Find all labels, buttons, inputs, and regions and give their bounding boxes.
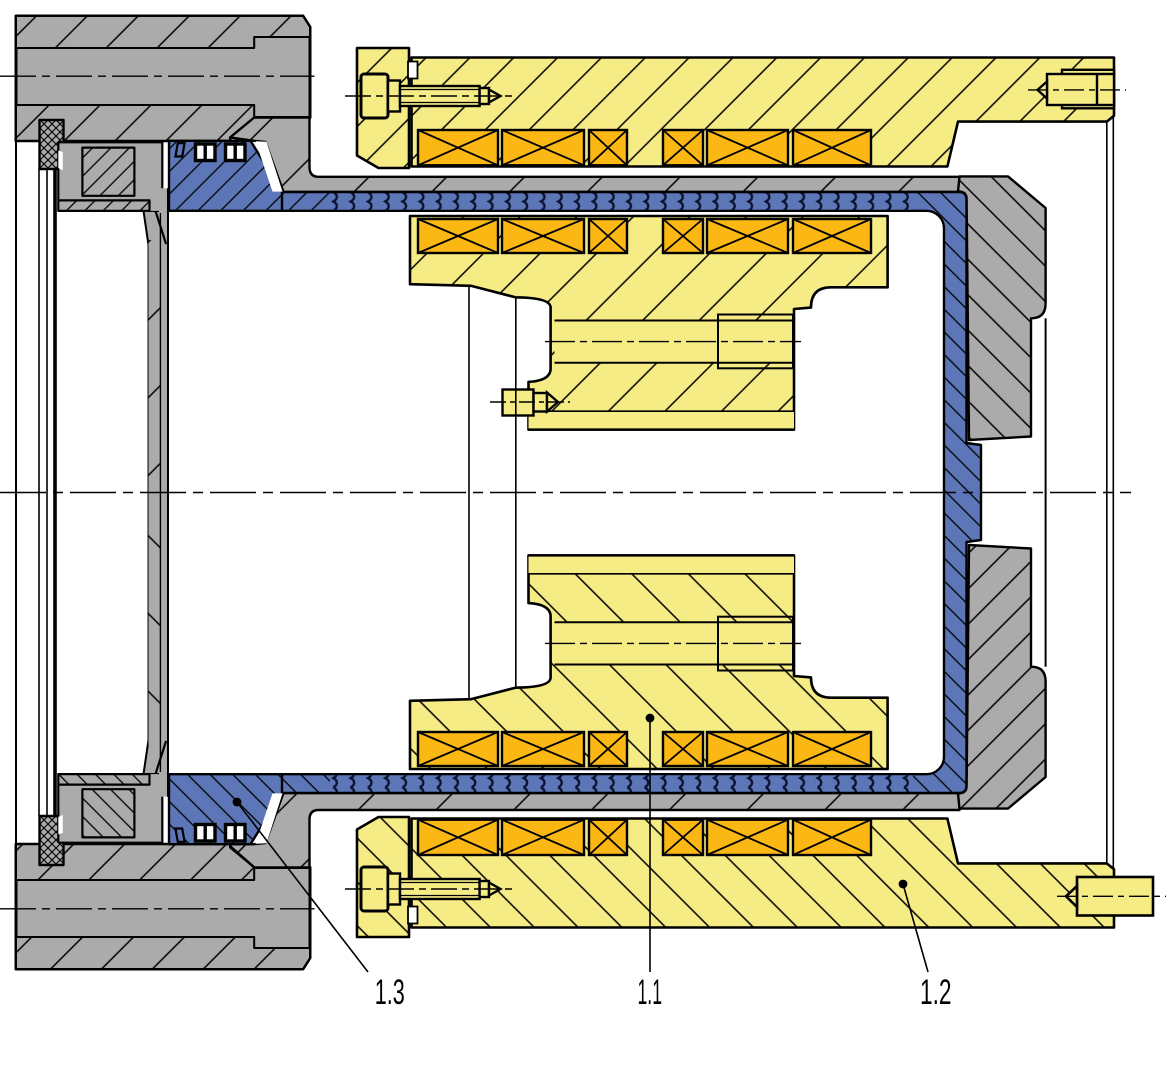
svg-text:1.3: 1.3 [375, 973, 405, 1012]
svg-text:1.2: 1.2 [920, 973, 952, 1012]
svg-text:1.1: 1.1 [638, 973, 663, 1012]
